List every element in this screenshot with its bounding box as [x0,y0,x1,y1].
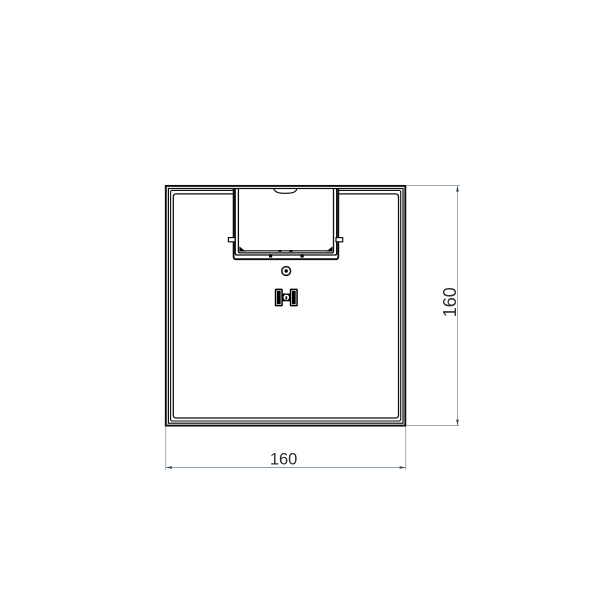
svg-text:160: 160 [270,450,298,468]
svg-text:160: 160 [440,287,460,317]
